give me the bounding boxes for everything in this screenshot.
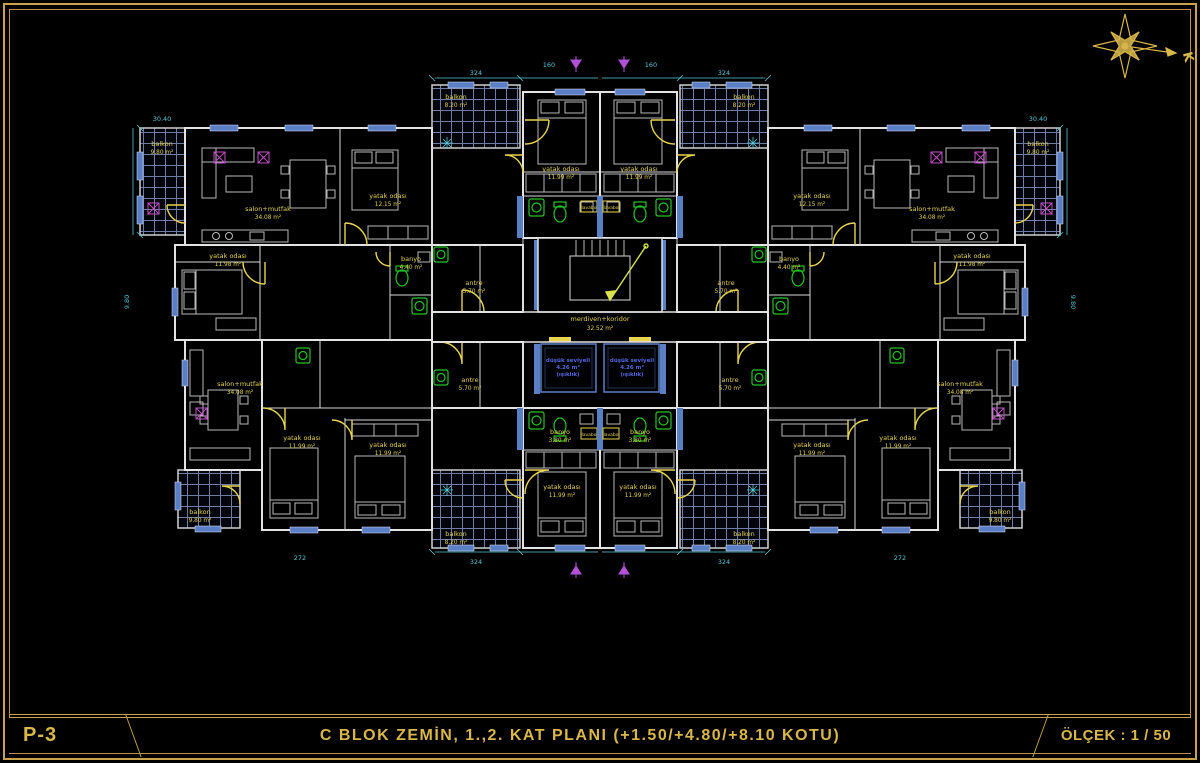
lavabo-label: lavabo	[603, 205, 618, 211]
svg-text:8.20 m²: 8.20 m²	[733, 539, 756, 546]
svg-text:9.80: 9.80	[123, 295, 131, 309]
svg-text:11.99 m²: 11.99 m²	[548, 174, 574, 181]
shaft-label: düşük seviyeli	[610, 358, 654, 364]
room-label: balkon	[733, 530, 755, 538]
svg-text:11.99 m²: 11.99 m²	[375, 450, 401, 457]
room-label: balkon	[733, 93, 755, 101]
room-label: yatak odası	[879, 434, 917, 442]
room-label: salon+mutfak	[245, 205, 291, 213]
svg-text:34.08 m²: 34.08 m²	[227, 389, 253, 396]
svg-text:9.80 m²: 9.80 m²	[189, 517, 212, 524]
svg-text:3.80 m²: 3.80 m²	[629, 437, 652, 444]
room-label: balkon	[151, 140, 173, 148]
svg-text:5.70 m²: 5.70 m²	[715, 288, 738, 295]
svg-text:324: 324	[470, 558, 482, 566]
room-label: salon+mutfak	[909, 205, 955, 213]
svg-text:5.70 m²: 5.70 m²	[719, 385, 742, 392]
room-label: yatak odası	[543, 483, 581, 491]
svg-text:12.15 m²: 12.15 m²	[799, 201, 825, 208]
room-label: antre	[461, 376, 478, 384]
room-label: yatak odası	[793, 192, 831, 200]
svg-text:11.99 m²: 11.99 m²	[625, 492, 651, 499]
svg-text:11.98 m²: 11.98 m²	[215, 261, 241, 268]
room-label: antre	[465, 279, 482, 287]
room-label: salon+mutfak	[217, 380, 263, 388]
svg-text:12.15 m²: 12.15 m²	[375, 201, 401, 208]
svg-text:11.99 m²: 11.99 m²	[626, 174, 652, 181]
svg-text:5.70 m²: 5.70 m²	[463, 288, 486, 295]
drawing-sheet: balkon9.80 m² salon+mutfak34.08 m² yatak…	[0, 0, 1200, 763]
svg-text:8.20 m²: 8.20 m²	[733, 102, 756, 109]
svg-text:30.40: 30.40	[153, 115, 172, 123]
title-bar: P-3 C BLOK ZEMİN, 1.,2. KAT PLANI (+1.50…	[9, 717, 1191, 753]
svg-text:11.99 m²: 11.99 m²	[885, 443, 911, 450]
room-label: yatak odası	[283, 434, 321, 442]
svg-text:324: 324	[718, 69, 730, 77]
floor-plan-canvas: balkon9.80 m² salon+mutfak34.08 m² yatak…	[0, 0, 1200, 720]
room-label: balkon	[189, 508, 211, 516]
svg-text:30.40: 30.40	[1029, 115, 1048, 123]
svg-text:11.99 m²: 11.99 m²	[289, 443, 315, 450]
svg-text:8.20 m²: 8.20 m²	[445, 102, 468, 109]
svg-text:9.80 m²: 9.80 m²	[151, 149, 174, 156]
svg-text:11.99 m²: 11.99 m²	[799, 450, 825, 457]
svg-text:272: 272	[894, 554, 906, 562]
room-label: antre	[717, 279, 734, 287]
svg-text:9.80: 9.80	[1069, 295, 1077, 309]
room-label: yatak odası	[369, 192, 407, 200]
north-letter: K	[1179, 50, 1196, 65]
svg-text:(ışıklık): (ışıklık)	[556, 372, 580, 378]
room-label: balkon	[1027, 140, 1049, 148]
shaft-label: düşük seviyeli	[546, 358, 590, 364]
svg-text:4.26 m²: 4.26 m²	[620, 364, 644, 371]
svg-text:324: 324	[718, 558, 730, 566]
room-label: yatak odası	[209, 252, 247, 260]
room-label: yatak odası	[793, 441, 831, 449]
svg-text:160: 160	[645, 61, 657, 69]
room-label: antre	[721, 376, 738, 384]
room-label: yatak odası	[953, 252, 991, 260]
svg-text:4.26 m²: 4.26 m²	[556, 364, 580, 371]
svg-text:4.40 m²: 4.40 m²	[778, 264, 801, 271]
room-label: banyo	[630, 428, 650, 436]
svg-text:5.70 m²: 5.70 m²	[459, 385, 482, 392]
svg-text:11.99 m²: 11.99 m²	[549, 492, 575, 499]
svg-text:34.08 m²: 34.08 m²	[255, 214, 281, 221]
room-label: balkon	[989, 508, 1011, 516]
svg-text:34.08 m²: 34.08 m²	[947, 389, 973, 396]
svg-text:324: 324	[470, 69, 482, 77]
svg-text:9.80 m²: 9.80 m²	[1027, 149, 1050, 156]
room-label: salon+mutfak	[937, 380, 983, 388]
room-label: yatak odası	[542, 165, 580, 173]
room-label: banyo	[550, 428, 570, 436]
svg-text:32.52 m²: 32.52 m²	[587, 325, 613, 332]
room-label: balkon	[445, 93, 467, 101]
room-label: banyo	[779, 255, 799, 263]
lavabo-label: lavabo	[581, 432, 596, 438]
svg-text:9.80 m²: 9.80 m²	[989, 517, 1012, 524]
lavabo-label: lavabo	[581, 205, 596, 211]
svg-text:34.08 m²: 34.08 m²	[919, 214, 945, 221]
plan-right-half	[597, 56, 1067, 578]
room-label: banyo	[401, 255, 421, 263]
room-label: yatak odası	[369, 441, 407, 449]
svg-text:160: 160	[543, 61, 555, 69]
svg-text:(ışıklık): (ışıklık)	[620, 372, 644, 378]
svg-text:272: 272	[294, 554, 306, 562]
sheet-title: C BLOK ZEMİN, 1.,2. KAT PLANI (+1.50/+4.…	[320, 727, 840, 745]
room-label: yatak odası	[619, 483, 657, 491]
room-label: merdiven+koridor	[571, 315, 630, 323]
room-label: balkon	[445, 530, 467, 538]
sheet-code: P-3	[23, 724, 57, 747]
north-arrow: K	[1080, 8, 1200, 88]
lavabo-label: lavabo	[603, 432, 618, 438]
svg-text:3.80 m²: 3.80 m²	[549, 437, 572, 444]
plan-left-half	[133, 56, 603, 578]
svg-text:8.20 m²: 8.20 m²	[445, 539, 468, 546]
sheet-scale: ÖLÇEK : 1 / 50	[1061, 727, 1171, 744]
room-label: yatak odası	[620, 165, 658, 173]
svg-text:11.98 m²: 11.98 m²	[959, 261, 985, 268]
svg-text:4.40 m²: 4.40 m²	[400, 264, 423, 271]
